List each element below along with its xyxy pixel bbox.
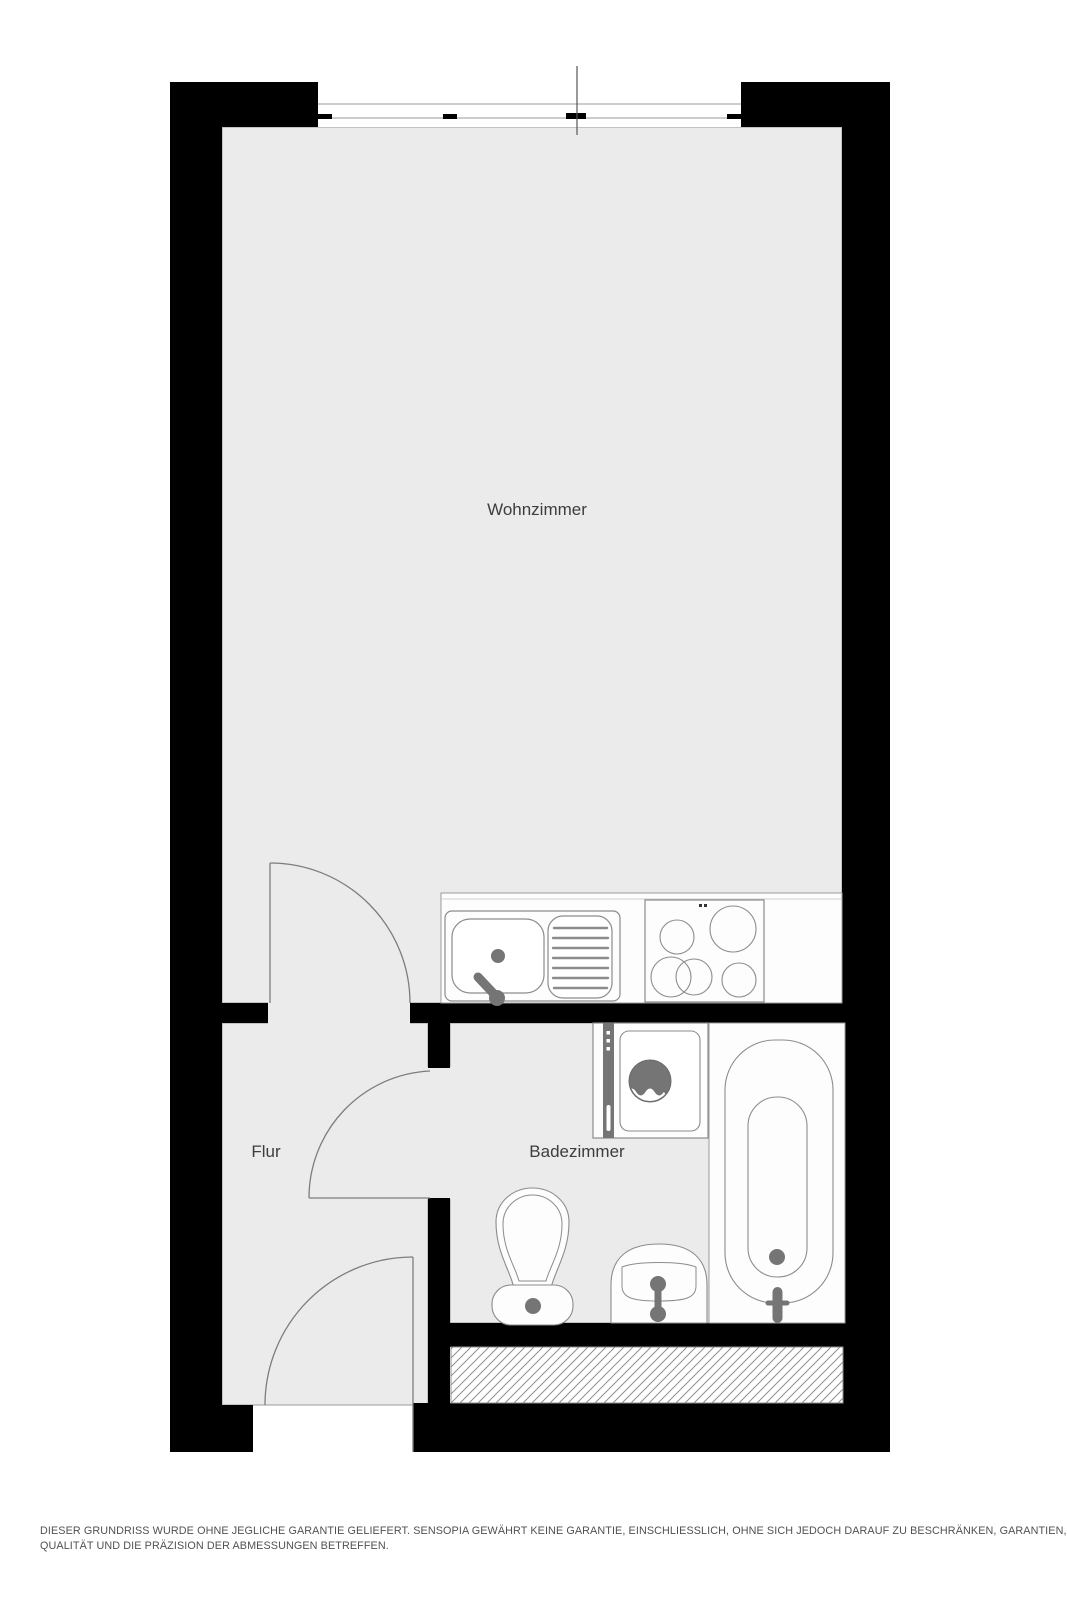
toilet-flush-button [525,1298,541,1314]
bathtub-drain [769,1249,785,1265]
floor-plan-page: Wohnzimmer Flur Badezimmer DIESER GRUNDR… [0,0,1067,1600]
ventilation-shaft-hatch [451,1347,843,1403]
window-tick [727,114,741,119]
cooktop-control-dot [699,904,702,907]
wall-top-left [170,82,318,127]
room-label-wohnzimmer: Wohnzimmer [457,499,617,521]
disclaimer-line-1: DIESER GRUNDRISS WURDE OHNE JEGLICHE GAR… [40,1524,1067,1539]
sink-faucet-head [489,990,505,1006]
washing-machine-slot [607,1105,611,1131]
washing-machine-led [607,1031,611,1035]
window-tick [443,114,457,119]
wall-flur-bath-upper [428,1023,450,1068]
wall-bottom-right [413,1403,890,1452]
wall-flur-bath-lower [428,1198,450,1405]
disclaimer-line-2: QUALITÄT UND DIE PRÄZISION DER ABMESSUNG… [40,1539,1067,1554]
kitchen [441,893,842,1006]
wall-living-bath [410,1003,842,1023]
washing-machine-led [607,1039,611,1043]
room-label-badezimmer: Badezimmer [497,1141,657,1163]
window [318,66,741,135]
sink-drain [491,949,505,963]
wall-living-flur-stub [222,1003,268,1023]
floor-flur [222,1023,428,1405]
room-label-flur: Flur [216,1141,316,1163]
doorway-living-flur [268,1002,410,1024]
wall-bath-bottom [428,1323,842,1347]
drainboard-slats [553,928,608,988]
cooktop-control-dot [704,904,707,907]
window-tick [318,114,332,119]
disclaimer: DIESER GRUNDRISS WURDE OHNE JEGLICHE GAR… [40,1524,1067,1553]
washbasin-tap-top [650,1276,666,1292]
burner [660,920,694,954]
wall-right [842,82,890,1452]
wall-left [170,82,222,1452]
floor-plan-drawing [0,0,1067,1600]
burner [722,963,756,997]
window-tick [566,113,586,119]
washbasin-tap-base [650,1306,666,1322]
burner [710,906,756,952]
wall-bottom-left [170,1405,253,1452]
floor-wohnzimmer [222,127,842,1003]
washing-machine-led [607,1047,611,1051]
doorway-flur-bath [427,1067,451,1199]
